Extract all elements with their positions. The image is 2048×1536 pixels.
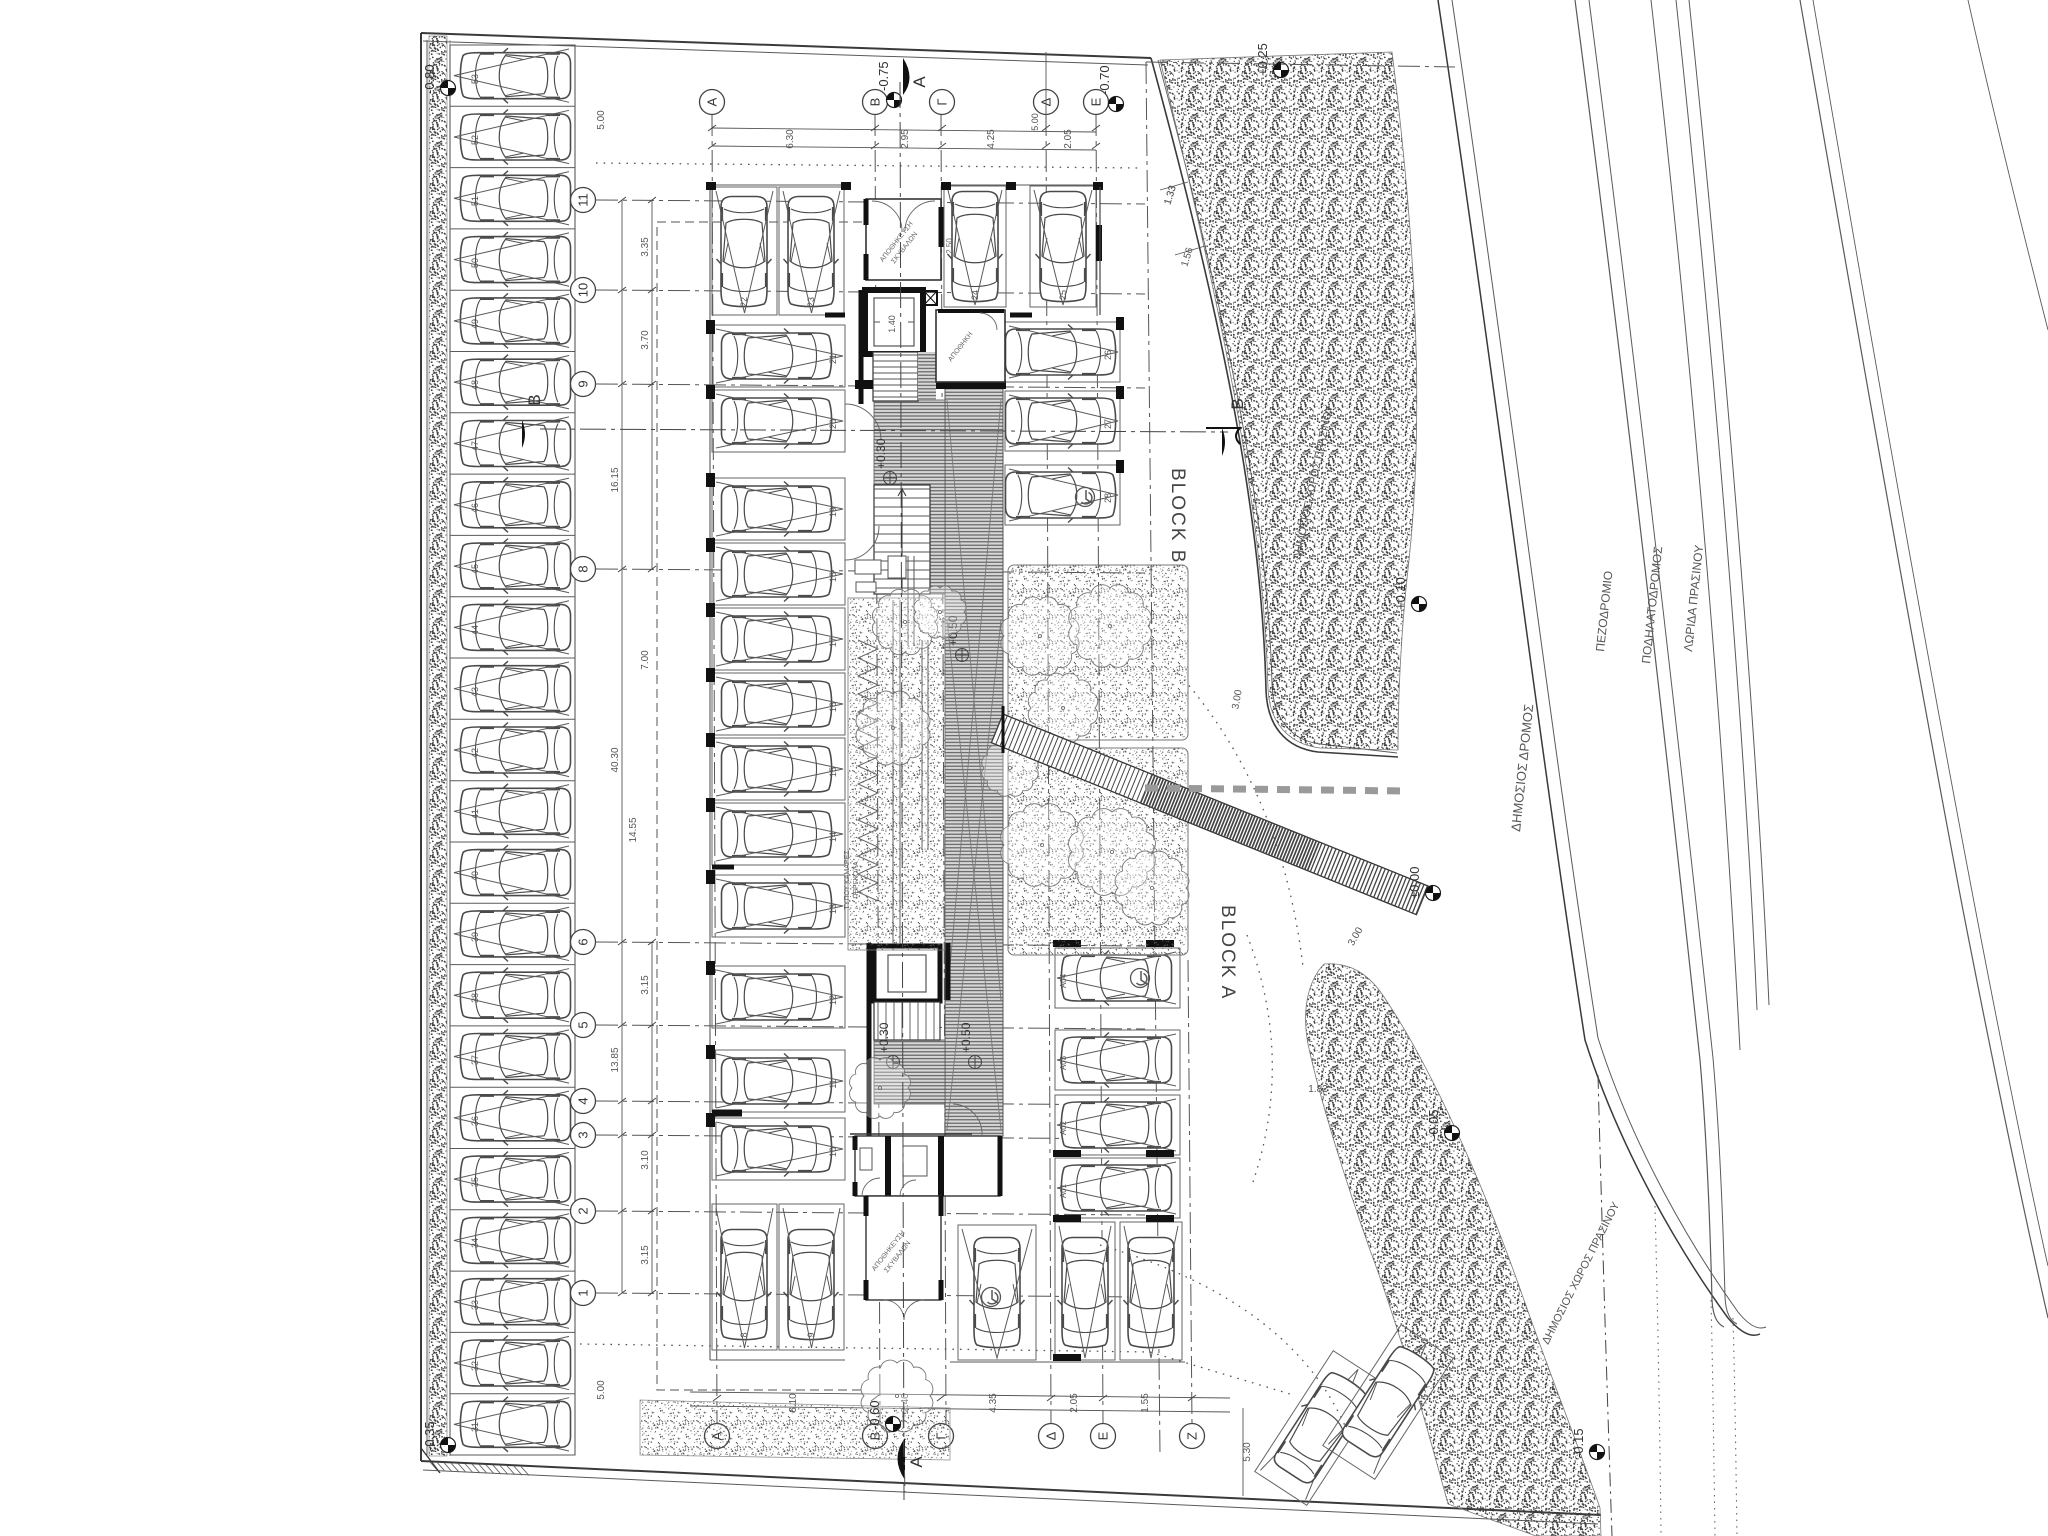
svg-text:27: 27 <box>1103 419 1113 429</box>
svg-text:2.50: 2.50 <box>945 238 954 254</box>
svg-text:±0.00: ±0.00 <box>1407 867 1422 899</box>
svg-text:17: 17 <box>828 637 838 647</box>
svg-text:40: 40 <box>470 871 480 881</box>
svg-text:3.35: 3.35 <box>640 237 651 257</box>
svg-text:4.25: 4.25 <box>986 129 997 149</box>
svg-text:23: 23 <box>806 297 816 307</box>
svg-text:-0.70: -0.70 <box>1097 65 1112 95</box>
svg-text:46: 46 <box>470 503 480 513</box>
svg-text:25: 25 <box>1058 290 1068 300</box>
svg-text:5.00: 5.00 <box>1030 113 1040 131</box>
svg-text:5.00: 5.00 <box>596 110 607 130</box>
svg-text:11: 11 <box>828 1079 838 1088</box>
svg-text:47: 47 <box>470 441 480 451</box>
svg-text:A02: A02 <box>1059 1120 1068 1135</box>
svg-text:A03: A03 <box>1059 1055 1068 1070</box>
svg-text:16.15: 16.15 <box>610 467 621 492</box>
svg-text:5.30: 5.30 <box>1242 1442 1253 1462</box>
svg-text:3.15: 3.15 <box>640 975 651 995</box>
svg-text:12: 12 <box>828 995 838 1005</box>
svg-text:6: 6 <box>576 938 591 945</box>
svg-text:A: A <box>907 1456 926 1468</box>
svg-text:14: 14 <box>828 832 838 842</box>
svg-text:4.35: 4.35 <box>988 1393 999 1413</box>
svg-text:1.40: 1.40 <box>887 315 897 333</box>
svg-text:24: 24 <box>970 290 980 300</box>
svg-text:1: 1 <box>576 1289 591 1296</box>
svg-text:33: 33 <box>470 1300 480 1310</box>
svg-text:8: 8 <box>739 1332 749 1337</box>
svg-text:20: 20 <box>828 419 838 429</box>
svg-text:A01: A01 <box>1059 1183 1068 1198</box>
svg-text:+0.50: +0.50 <box>959 1022 973 1053</box>
svg-text:40.30: 40.30 <box>610 747 621 772</box>
svg-text:7.00: 7.00 <box>640 650 651 670</box>
svg-text:-0.35: -0.35 <box>422 1421 437 1451</box>
svg-text:21: 21 <box>828 354 838 364</box>
svg-text:4: 4 <box>576 1097 591 1104</box>
svg-text:41: 41 <box>470 809 480 819</box>
svg-text:A04: A04 <box>1059 973 1068 988</box>
svg-text:3.70: 3.70 <box>640 330 651 350</box>
svg-text:38: 38 <box>470 993 480 1003</box>
svg-text:37: 37 <box>470 1055 480 1065</box>
svg-text:-0.80: -0.80 <box>422 64 437 94</box>
svg-text:B: B <box>1228 398 1247 409</box>
svg-text:-0.05: -0.05 <box>1426 1109 1441 1139</box>
svg-text:3: 3 <box>576 1131 591 1138</box>
svg-text:1.82: 1.82 <box>1308 1084 1328 1095</box>
svg-text:B: B <box>868 98 883 107</box>
svg-text:A: A <box>705 97 720 106</box>
svg-text:+0.10: +0.10 <box>1393 577 1408 610</box>
svg-text:49: 49 <box>470 319 480 329</box>
svg-text:-0.60: -0.60 <box>867 1400 882 1430</box>
svg-text:E: E <box>1089 97 1104 106</box>
svg-text:2.05: 2.05 <box>1069 1393 1080 1413</box>
svg-text:BLOCK A: BLOCK A <box>1217 905 1238 1000</box>
svg-text:32: 32 <box>470 1361 480 1371</box>
svg-text:28: 28 <box>1103 493 1113 503</box>
svg-text:26: 26 <box>1103 350 1113 360</box>
svg-text:10: 10 <box>828 1147 838 1157</box>
svg-text:18: 18 <box>828 572 838 582</box>
svg-text:2: 2 <box>576 1207 591 1214</box>
svg-text:3.10: 3.10 <box>640 1150 651 1170</box>
svg-text:35: 35 <box>470 1177 480 1187</box>
svg-text:8: 8 <box>576 565 591 572</box>
svg-text:11: 11 <box>576 193 591 207</box>
svg-text:Z: Z <box>1185 1432 1200 1440</box>
svg-text:2.05: 2.05 <box>1063 129 1074 149</box>
svg-text:2.95: 2.95 <box>900 129 911 149</box>
svg-text:52: 52 <box>470 135 480 145</box>
svg-text:9: 9 <box>806 1332 816 1337</box>
svg-text:Γ: Γ <box>935 98 950 105</box>
svg-text:13.85: 13.85 <box>610 1047 621 1072</box>
svg-text:5: 5 <box>576 1021 591 1028</box>
svg-text:Δ: Δ <box>1044 1431 1059 1440</box>
svg-text:ΠΕΡΓΚΟΛΑ: ΠΕΡΓΚΟΛΑ <box>853 861 860 899</box>
svg-text:34: 34 <box>470 1238 480 1248</box>
svg-text:9: 9 <box>576 380 591 387</box>
svg-text:43: 43 <box>470 687 480 697</box>
svg-text:44: 44 <box>470 625 480 635</box>
svg-text:19: 19 <box>828 507 838 517</box>
svg-text:14.55: 14.55 <box>628 817 639 842</box>
svg-text:36: 36 <box>470 1116 480 1126</box>
svg-text:-0.15: -0.15 <box>1571 1428 1586 1458</box>
svg-text:6.30: 6.30 <box>785 129 796 149</box>
svg-text:13: 13 <box>828 904 838 914</box>
svg-text:3.15: 3.15 <box>640 1245 651 1265</box>
svg-text:A: A <box>910 76 929 88</box>
svg-text:B: B <box>525 394 544 405</box>
svg-text:53: 53 <box>470 74 480 84</box>
svg-text:15: 15 <box>828 767 838 777</box>
svg-text:+0.30: +0.30 <box>877 1022 891 1053</box>
svg-text:BLOCK B: BLOCK B <box>1167 468 1188 564</box>
svg-text:16: 16 <box>828 702 838 712</box>
svg-text:51: 51 <box>470 196 480 206</box>
svg-text:+0.30: +0.30 <box>874 438 888 469</box>
svg-text:1.55: 1.55 <box>1140 1393 1151 1413</box>
svg-text:31: 31 <box>470 1422 480 1432</box>
svg-text:5.00: 5.00 <box>596 1380 607 1400</box>
svg-text:ΤΥΠΟΥ ΚΑΜΑΡΕΣ: ΤΥΠΟΥ ΚΑΜΑΡΕΣ <box>844 850 851 910</box>
svg-text:48: 48 <box>470 380 480 390</box>
svg-text:22: 22 <box>739 297 749 307</box>
svg-text:E: E <box>1096 1431 1111 1440</box>
svg-text:+0.25: +0.25 <box>1255 43 1270 76</box>
svg-text:-0.75: -0.75 <box>876 61 891 91</box>
svg-text:45: 45 <box>470 564 480 574</box>
svg-text:10: 10 <box>576 283 591 297</box>
svg-text:42: 42 <box>470 748 480 758</box>
svg-text:39: 39 <box>470 932 480 942</box>
svg-text:50: 50 <box>470 258 480 268</box>
